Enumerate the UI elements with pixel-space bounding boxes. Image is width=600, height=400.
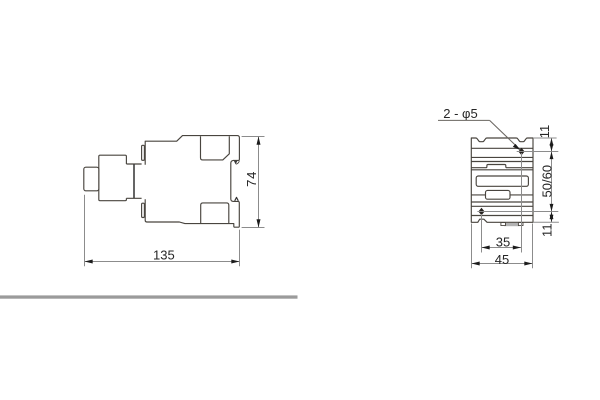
svg-text:45: 45	[495, 252, 509, 267]
svg-text:11: 11	[537, 125, 552, 139]
svg-text:2 - φ5: 2 - φ5	[443, 106, 477, 121]
svg-text:35: 35	[496, 235, 510, 250]
svg-text:74: 74	[244, 171, 259, 187]
svg-text:11: 11	[539, 223, 554, 237]
svg-text:50/60: 50/60	[539, 165, 554, 198]
svg-text:135: 135	[153, 248, 175, 263]
